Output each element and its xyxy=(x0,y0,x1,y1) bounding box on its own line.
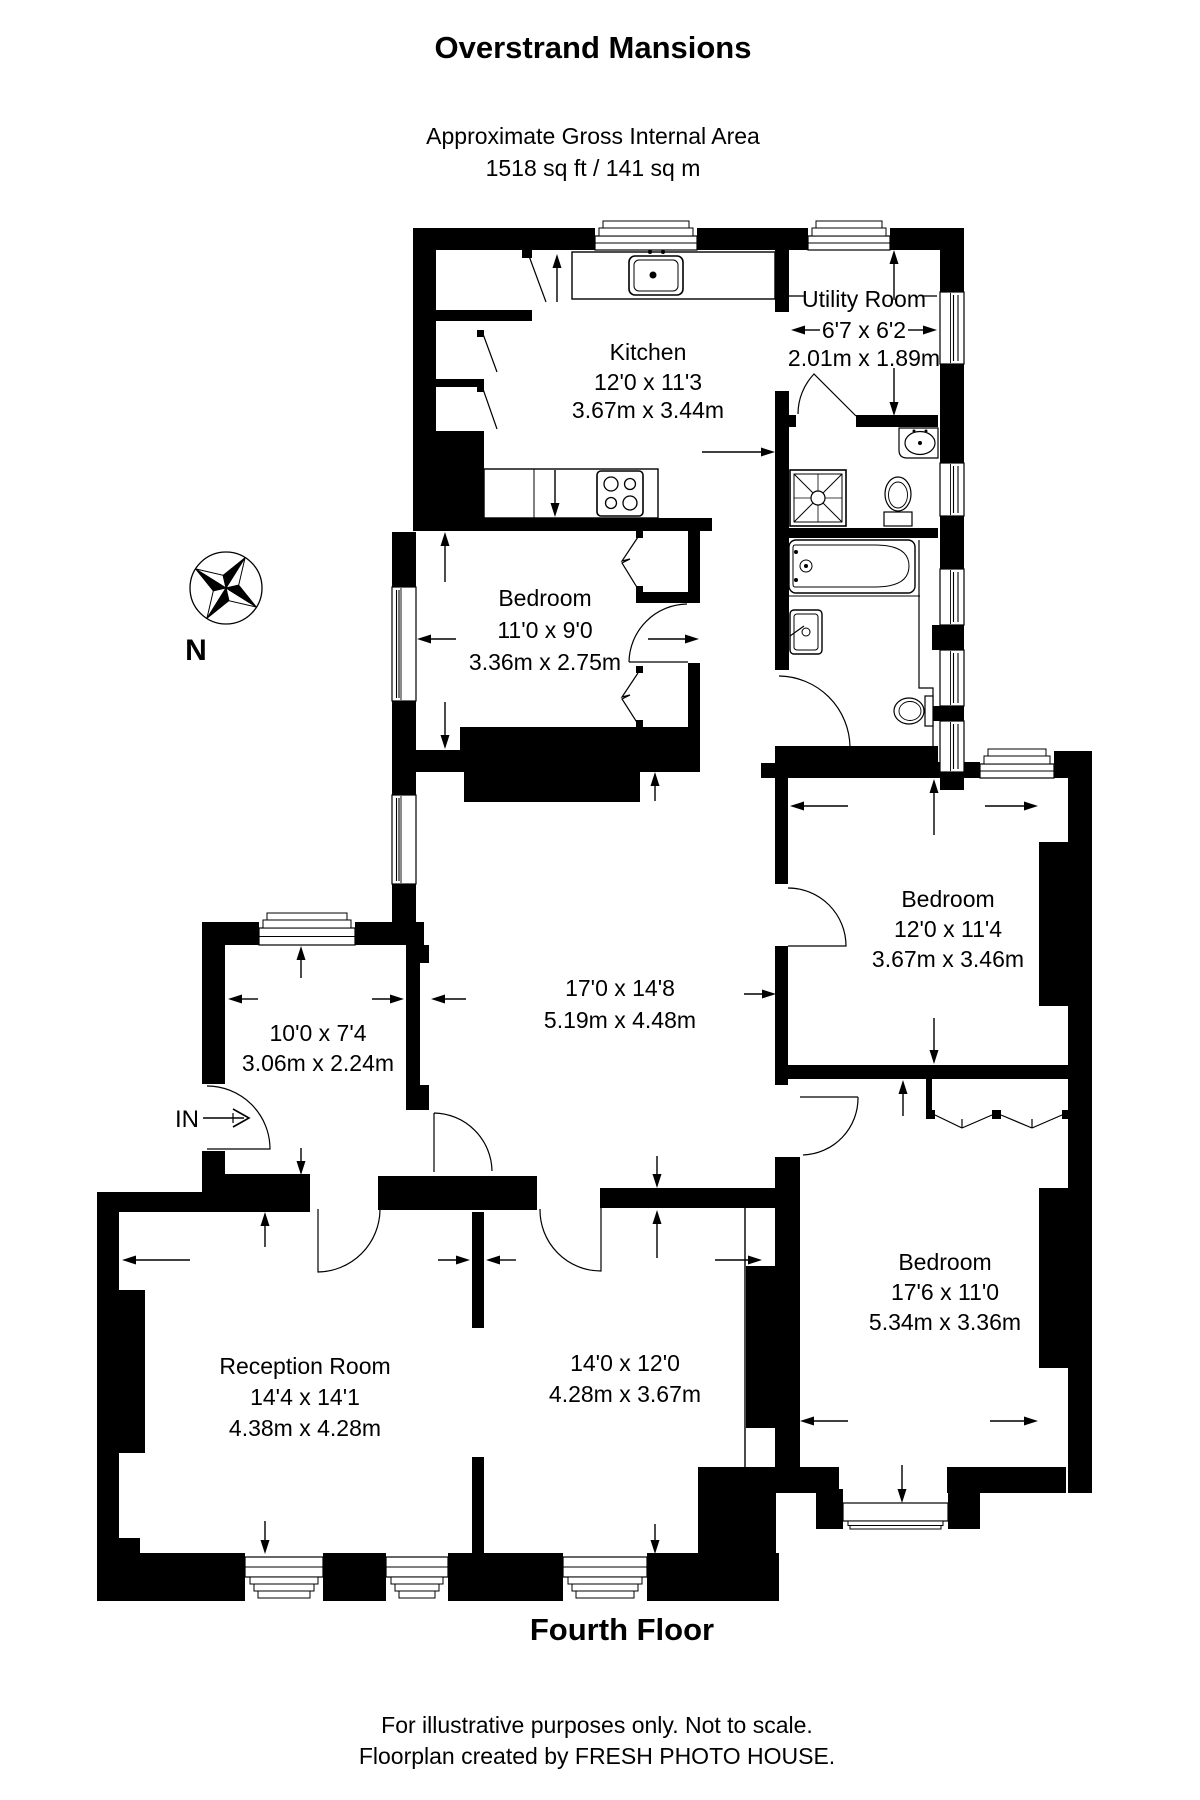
svg-text:10'0 x 7'4: 10'0 x 7'4 xyxy=(269,1020,366,1046)
svg-text:Overstrand Mansions: Overstrand Mansions xyxy=(435,30,752,65)
svg-text:3.36m x 2.75m: 3.36m x 2.75m xyxy=(469,649,621,675)
svg-text:Kitchen: Kitchen xyxy=(610,339,687,365)
svg-text:5.34m x 3.36m: 5.34m x 3.36m xyxy=(869,1309,1021,1335)
svg-text:1518 sq ft / 141 sq m: 1518 sq ft / 141 sq m xyxy=(486,155,701,181)
svg-text:Floorplan created by FRESH PHO: Floorplan created by FRESH PHOTO HOUSE. xyxy=(359,1743,835,1769)
svg-text:3.67m x 3.46m: 3.67m x 3.46m xyxy=(872,946,1024,972)
svg-text:Bedroom: Bedroom xyxy=(898,1249,991,1275)
svg-text:17'6 x 11'0: 17'6 x 11'0 xyxy=(891,1279,999,1305)
svg-text:11'0 x 9'0: 11'0 x 9'0 xyxy=(497,617,592,643)
svg-text:6'7 x 6'2: 6'7 x 6'2 xyxy=(822,317,906,343)
svg-text:Bedroom: Bedroom xyxy=(498,585,591,611)
svg-text:Bedroom: Bedroom xyxy=(901,886,994,912)
svg-text:3.67m x 3.44m: 3.67m x 3.44m xyxy=(572,397,724,423)
svg-text:12'0 x 11'3: 12'0 x 11'3 xyxy=(594,369,702,395)
svg-text:4.28m x 3.67m: 4.28m x 3.67m xyxy=(549,1381,701,1407)
svg-text:Fourth Floor: Fourth Floor xyxy=(530,1612,714,1647)
svg-text:4.38m x 4.28m: 4.38m x 4.28m xyxy=(229,1415,381,1441)
svg-text:Utility Room: Utility Room xyxy=(802,286,926,312)
svg-text:Approximate Gross Internal Are: Approximate Gross Internal Area xyxy=(426,123,760,149)
svg-text:17'0 x 14'8: 17'0 x 14'8 xyxy=(565,975,675,1001)
svg-text:14'4 x 14'1: 14'4 x 14'1 xyxy=(250,1384,360,1410)
svg-text:2.01m x 1.89m: 2.01m x 1.89m xyxy=(788,345,940,371)
svg-text:For illustrative purposes only: For illustrative purposes only. Not to s… xyxy=(381,1712,813,1738)
svg-text:12'0 x 11'4: 12'0 x 11'4 xyxy=(894,916,1002,942)
svg-text:Reception Room: Reception Room xyxy=(219,1353,390,1379)
svg-text:3.06m x 2.24m: 3.06m x 2.24m xyxy=(242,1050,394,1076)
svg-text:14'0 x 12'0: 14'0 x 12'0 xyxy=(570,1350,680,1376)
svg-text:IN: IN xyxy=(175,1106,199,1133)
svg-text:N: N xyxy=(185,634,207,667)
svg-text:5.19m x 4.48m: 5.19m x 4.48m xyxy=(544,1007,696,1033)
